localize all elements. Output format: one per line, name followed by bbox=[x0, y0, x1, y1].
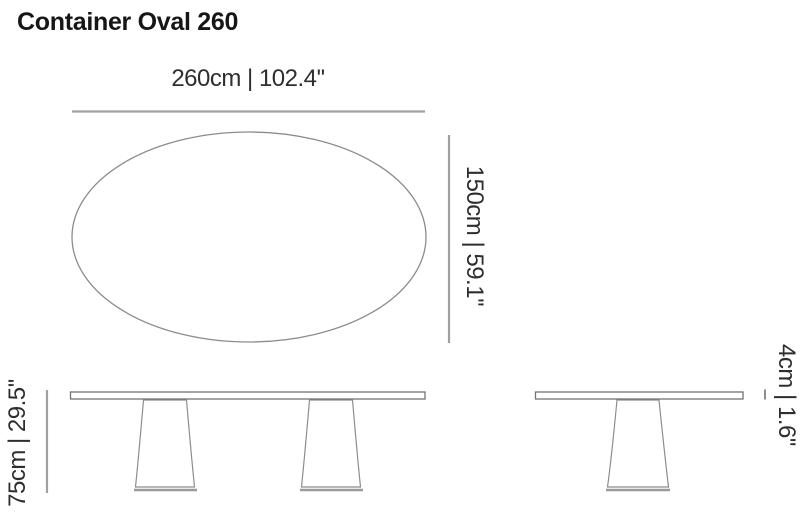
front-height-dimension-label: 75cm | 29.5'' bbox=[4, 379, 32, 507]
top-depth-dimension-label: 150cm | 59.1'' bbox=[460, 166, 488, 306]
top-width-dimension-label: 260cm | 102.4'' bbox=[171, 65, 324, 93]
side-leg bbox=[608, 400, 669, 487]
side-tabletop bbox=[536, 392, 744, 399]
top-view-ellipse bbox=[72, 132, 426, 342]
technical-drawing-svg bbox=[0, 0, 810, 515]
front-left-leg bbox=[136, 400, 195, 487]
front-right-leg bbox=[302, 400, 361, 487]
front-tabletop bbox=[71, 392, 426, 399]
product-dimension-sheet: Container Oval 260 260cm | 102.4'' 150cm… bbox=[0, 0, 810, 515]
side-thickness-dimension-label: 4cm | 1.6'' bbox=[772, 344, 800, 446]
